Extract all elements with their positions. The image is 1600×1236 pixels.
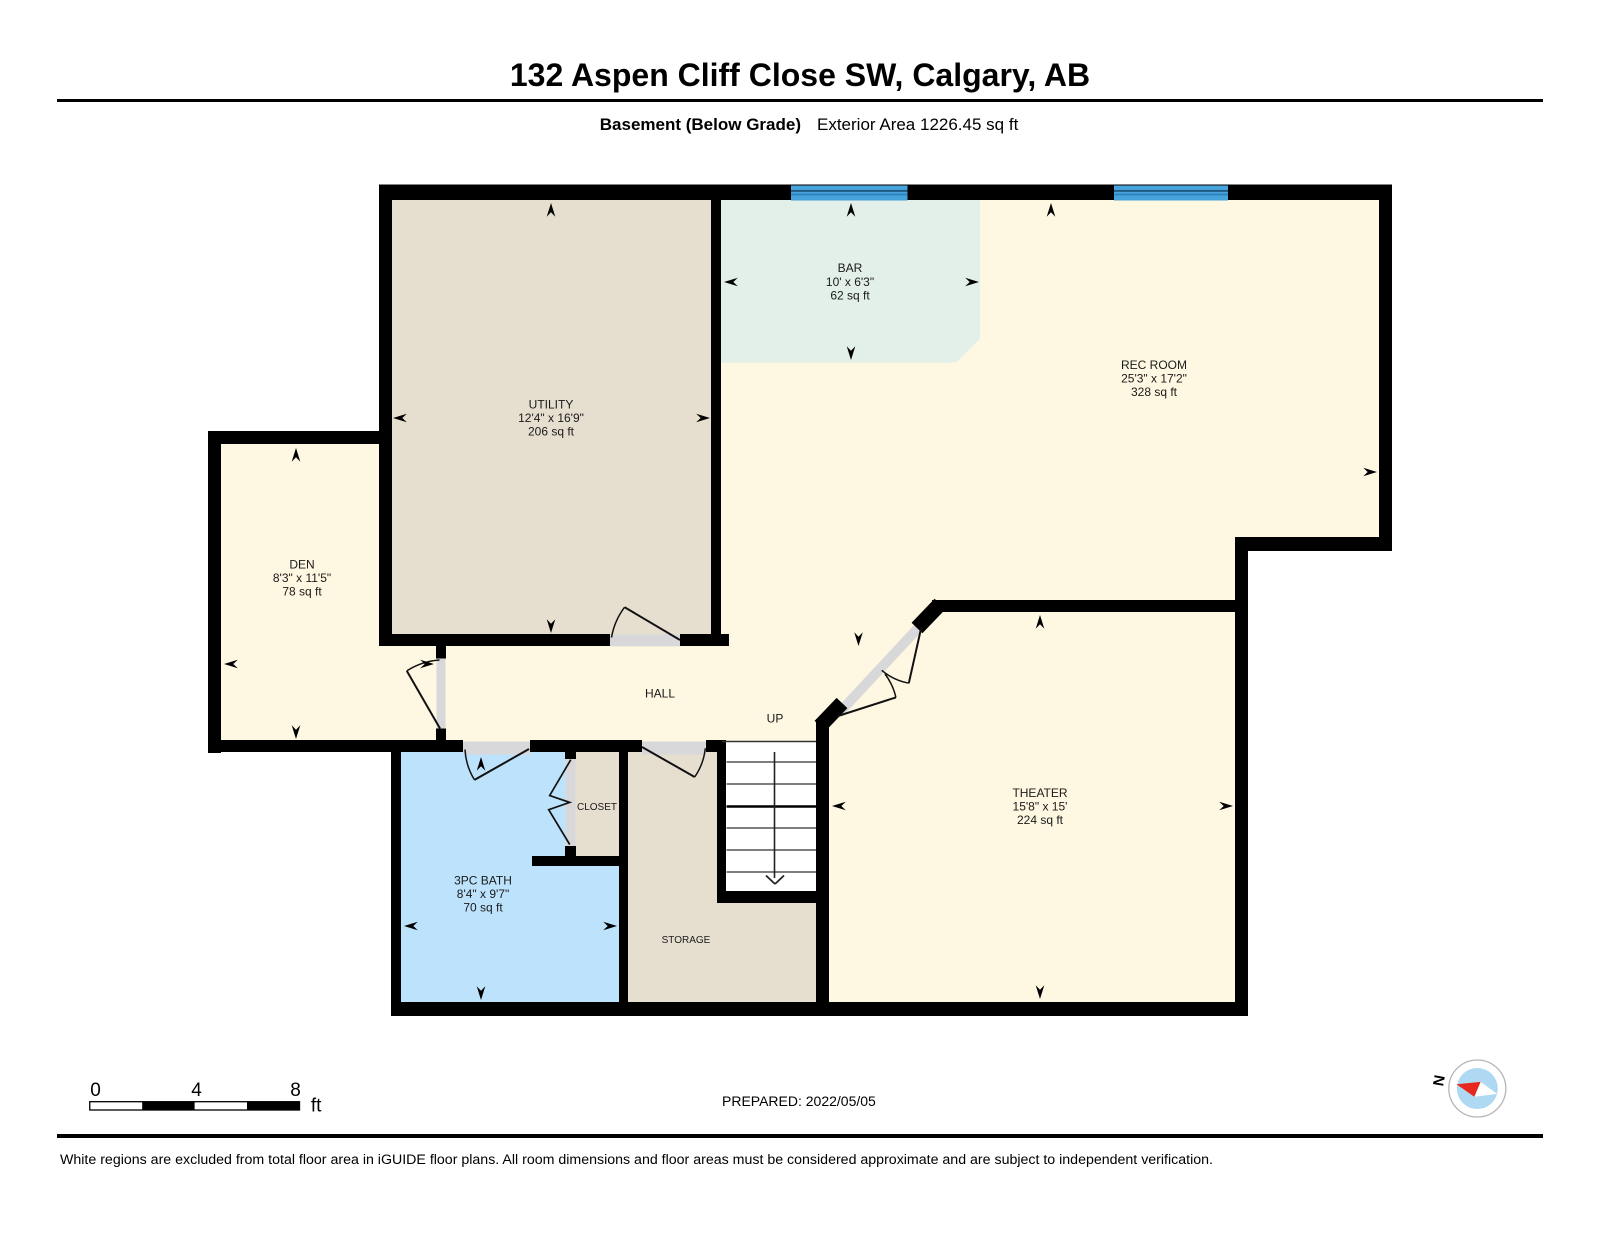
svg-text:BAR: BAR: [838, 261, 863, 275]
svg-text:25'3" x 17'2": 25'3" x 17'2": [1121, 372, 1187, 386]
svg-text:132 Aspen Cliff Close SW, Calg: 132 Aspen Cliff Close SW, Calgary, AB: [510, 57, 1090, 93]
svg-text:N: N: [1430, 1074, 1449, 1088]
svg-text:HALL: HALL: [645, 687, 675, 701]
svg-text:STORAGE: STORAGE: [662, 935, 711, 946]
svg-text:DEN: DEN: [289, 558, 314, 572]
svg-text:10' x 6'3": 10' x 6'3": [826, 275, 874, 289]
svg-text:78 sq ft: 78 sq ft: [282, 585, 322, 599]
svg-text:62 sq ft: 62 sq ft: [830, 289, 870, 303]
svg-text:8'4" x 9'7": 8'4" x 9'7": [457, 887, 509, 901]
svg-text:Basement (Below Grade): Basement (Below Grade): [600, 115, 801, 134]
svg-text:UP: UP: [767, 712, 784, 726]
svg-text:REC ROOM: REC ROOM: [1121, 358, 1187, 372]
svg-text:0: 0: [90, 1080, 101, 1101]
svg-text:Exterior Area 1226.45 sq ft: Exterior Area 1226.45 sq ft: [817, 115, 1019, 134]
svg-text:THEATER: THEATER: [1012, 786, 1067, 800]
svg-text:15'8" x 15': 15'8" x 15': [1013, 800, 1068, 814]
svg-text:ft: ft: [311, 1096, 322, 1117]
svg-text:4: 4: [191, 1080, 202, 1101]
svg-text:8: 8: [290, 1080, 301, 1101]
svg-text:UTILITY: UTILITY: [529, 398, 574, 412]
svg-text:White regions are excluded fro: White regions are excluded from total fl…: [60, 1152, 1213, 1168]
svg-text:8'3" x 11'5": 8'3" x 11'5": [273, 571, 331, 585]
svg-text:PREPARED: 2022/05/05: PREPARED: 2022/05/05: [722, 1093, 876, 1109]
svg-text:70 sq ft: 70 sq ft: [463, 901, 503, 915]
svg-text:206 sq ft: 206 sq ft: [528, 425, 575, 439]
svg-text:12'4" x 16'9": 12'4" x 16'9": [518, 411, 584, 425]
svg-text:3PC BATH: 3PC BATH: [454, 874, 512, 888]
svg-text:224 sq ft: 224 sq ft: [1017, 813, 1064, 827]
svg-text:328 sq ft: 328 sq ft: [1131, 385, 1178, 399]
svg-text:CLOSET: CLOSET: [577, 802, 617, 813]
